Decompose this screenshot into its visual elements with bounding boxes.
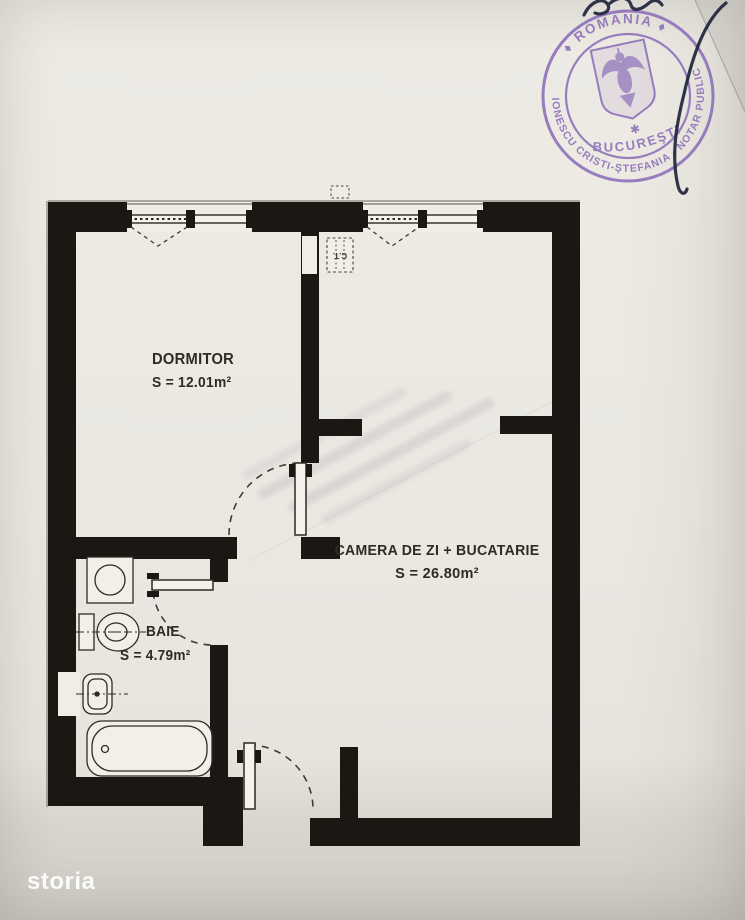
bathtub-icon — [87, 721, 212, 776]
window-bedroom — [123, 202, 255, 246]
faded-stamp-bleedthrough — [240, 352, 508, 549]
window-post — [186, 210, 195, 228]
room-area-bedroom: S = 12.01m² — [152, 374, 231, 391]
wall-bath-right-lower — [210, 645, 228, 777]
wall-stub-divider — [319, 419, 362, 436]
window-post — [418, 210, 427, 228]
notary-stamp: ♦ ROMANIA ♦ IONESCU CRISTI-ŞTEFANIA - NO… — [527, 0, 729, 197]
room-area-bathroom: S = 4.79m² — [120, 648, 191, 664]
window-post — [123, 210, 132, 228]
room-area-living: S = 26.80m² — [322, 565, 553, 582]
washing-machine-icon — [87, 557, 133, 603]
floor-plan-drawing: C.T. — [0, 0, 745, 920]
stamp-star: ✱ — [629, 121, 642, 137]
window-post — [246, 210, 255, 228]
scanned-floor-plan-photo: C.T. — [0, 0, 745, 920]
door-hinge — [289, 464, 295, 477]
room-label-bathroom: BAIE — [146, 624, 180, 640]
door-bedroom — [229, 463, 312, 535]
window-living — [359, 202, 486, 246]
sink-icon — [76, 674, 128, 714]
door-leaf-icon — [244, 743, 255, 809]
toilet-icon — [76, 613, 146, 651]
storia-logo: storia — [27, 868, 95, 896]
door-hinge — [255, 750, 261, 763]
door-leaf-icon — [152, 580, 213, 590]
wall-right — [552, 202, 580, 846]
wall-bath-right-upper — [210, 559, 228, 582]
wall-entry-left-jamb — [203, 777, 243, 846]
door-hinge — [237, 750, 243, 763]
door-leaf-icon — [295, 463, 306, 535]
wall-bottom — [310, 818, 580, 846]
door-hinge — [147, 591, 159, 597]
coat-of-arms-icon — [591, 40, 659, 125]
door-entry — [237, 743, 313, 809]
room-label-living: CAMERA DE ZI + BUCATARIE — [322, 543, 553, 559]
wall-stub-entry — [340, 747, 358, 818]
wall-stub-kitchen — [500, 416, 552, 434]
window-post — [359, 210, 368, 228]
window-post — [477, 210, 486, 228]
shaft-label: C.T. — [333, 251, 347, 260]
room-label-living-block: CAMERA DE ZI + BUCATARIE S = 26.80m² — [318, 543, 556, 582]
room-label-bedroom: DORMITOR — [152, 351, 234, 369]
door-hinge — [306, 464, 312, 477]
wall-top-middle — [252, 202, 363, 232]
wall-niche-divider — [302, 236, 317, 274]
shaft-vent-box — [331, 186, 349, 198]
door-hinge — [147, 573, 159, 579]
wall-bedroom-bottom — [76, 537, 237, 559]
